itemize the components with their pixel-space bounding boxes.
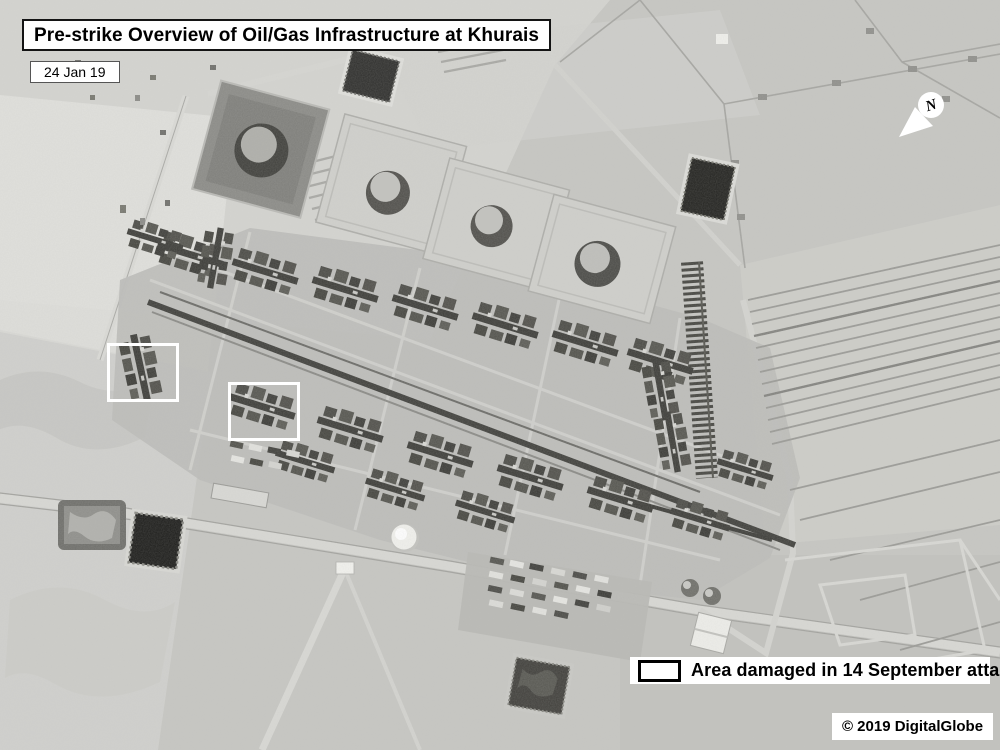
north-arrow-icon: N — [885, 82, 955, 152]
capture-date-box: 24 Jan 19 — [30, 61, 120, 83]
legend: Area damaged in 14 September attack — [630, 657, 990, 684]
damage-area-marker-1 — [107, 343, 179, 402]
damage-area-marker-2 — [228, 382, 300, 441]
credit-text: © 2019 DigitalGlobe — [842, 718, 983, 735]
capture-date: 24 Jan 19 — [44, 64, 106, 80]
page-title: Pre-strike Overview of Oil/Gas Infrastru… — [34, 25, 539, 47]
legend-label: Area damaged in 14 September attack — [691, 660, 1000, 681]
credit-box: © 2019 DigitalGlobe — [832, 713, 993, 740]
title-box: Pre-strike Overview of Oil/Gas Infrastru… — [22, 19, 551, 51]
screenshot-root: Pre-strike Overview of Oil/Gas Infrastru… — [0, 0, 1000, 750]
damage-area-swatch-icon — [638, 660, 681, 682]
